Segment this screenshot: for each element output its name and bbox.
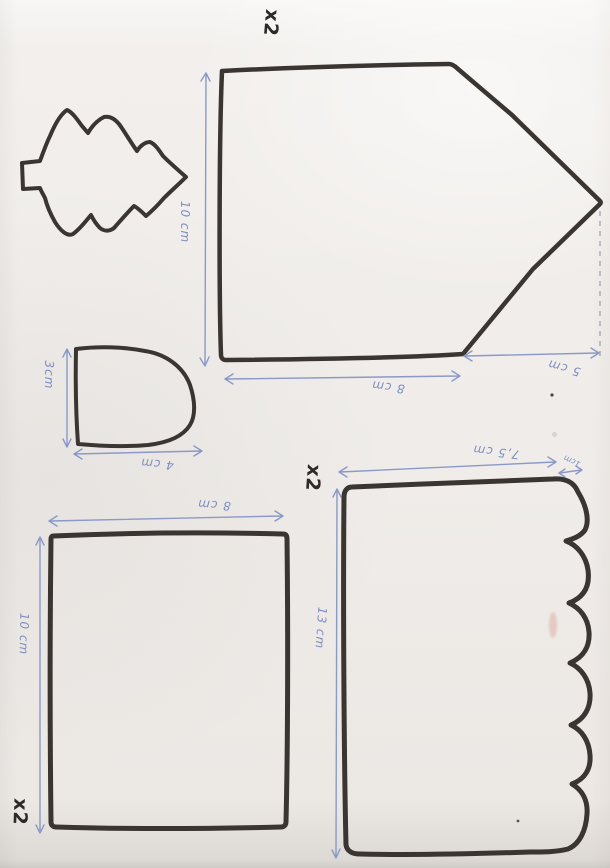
dimension-arrow-scalloped-height	[332, 489, 341, 858]
dim-label-dome-height: 3cm	[42, 361, 56, 390]
pattern-drawing	[0, 0, 610, 868]
dimension-arrow-gable-peak	[464, 348, 599, 361]
dimension-arrow-gable-height	[200, 73, 210, 366]
dim-label-gable-height: 10 cm	[178, 201, 192, 243]
tree-shape	[22, 110, 186, 235]
dimension-arrow-scalloped-width	[339, 457, 556, 477]
dimension-arrow-dome-height	[63, 349, 71, 447]
dimension-arrow-rectangle-height	[36, 537, 44, 833]
dimension-arrow-scallop-size	[559, 466, 582, 477]
copies-label-rectangle: x2	[9, 798, 32, 826]
copies-label-gable: x2	[259, 8, 283, 37]
dim-label-rectangle-height: 10 cm	[17, 613, 32, 656]
dimension-arrow-rectangle-width	[49, 511, 283, 526]
pattern-sheet: x2 x2 x2 10 cm 8 cm 5 cm 3cm 4 cm 8 cm 1…	[0, 0, 610, 868]
rectangle-panel-shape	[50, 533, 287, 829]
gable-panel-shape	[220, 64, 601, 360]
dimension-arrow-dome-width	[74, 446, 202, 459]
dimension-arrow-gable-width	[225, 371, 460, 384]
dim-label-dome-width: 4 cm	[140, 456, 175, 473]
ink-speck	[550, 393, 553, 396]
scalloped-panel-shape	[344, 479, 590, 855]
dim-label-scalloped-height: 13 cm	[313, 606, 330, 649]
ink-speck	[517, 820, 520, 823]
dome-shape	[76, 347, 194, 446]
dim-label-rectangle-width: 8 cm	[197, 497, 232, 513]
copies-label-scalloped: x2	[301, 464, 325, 493]
